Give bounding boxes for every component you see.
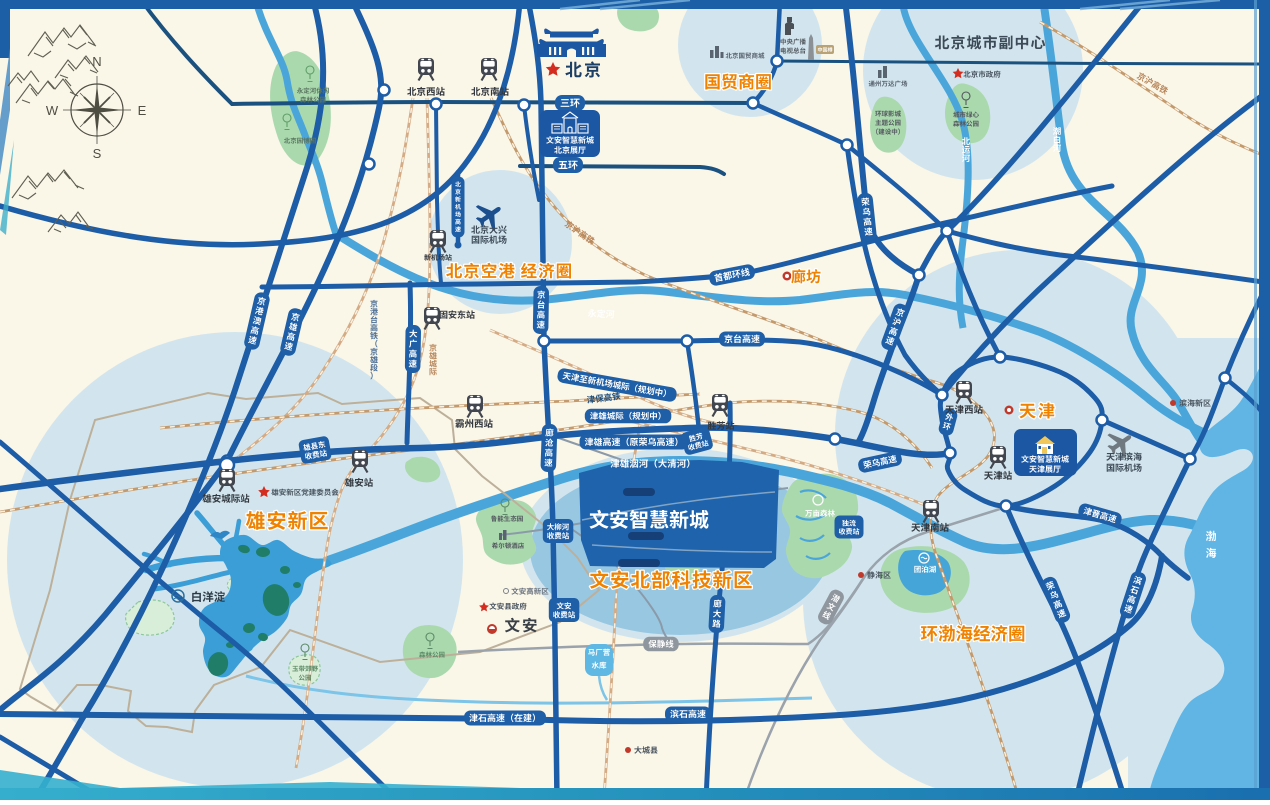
svg-text:S: S [93, 146, 102, 161]
svg-text:E: E [138, 103, 147, 118]
svg-text:W: W [46, 103, 59, 118]
svg-text:N: N [92, 54, 101, 69]
